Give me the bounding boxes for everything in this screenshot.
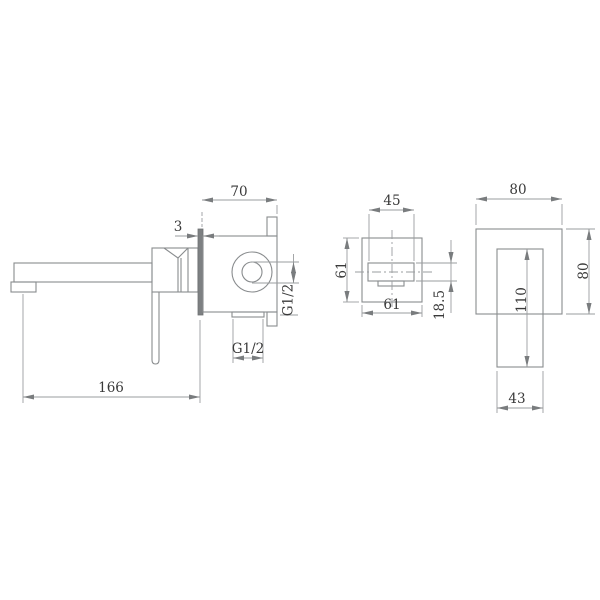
handle-cone-lines — [164, 248, 188, 258]
dim-label-depth: 70 — [230, 184, 247, 200]
mounting-tab-bottom — [267, 312, 277, 326]
dim-label-spout-width: 45 — [383, 193, 400, 209]
dim-label-spout-plate-height: 61 — [334, 261, 350, 278]
spout-outline — [14, 263, 152, 282]
handle-lever-outline — [152, 292, 159, 364]
dim-side-inlet-thread: G1/2 — [252, 254, 299, 316]
aerator-outline — [11, 282, 36, 292]
inlet-port-circle — [232, 252, 272, 292]
dim-spout-plate-width: 61 — [362, 297, 422, 317]
spout-front-view: 45 61 61 18.5 — [334, 193, 457, 320]
dim-label-plate-thickness: 3 — [174, 219, 183, 235]
valve-body-outline — [203, 236, 277, 312]
dim-plate-thickness: 3 — [174, 219, 219, 236]
mounting-tab-top — [267, 217, 277, 236]
handle-base-outline — [152, 248, 198, 292]
dim-label-spout-height: 18.5 — [432, 290, 448, 320]
dim-bottom-outlet-thread: G1/2 — [232, 319, 265, 363]
dim-label-mixer-plate-height: 80 — [576, 262, 592, 279]
dim-label-spout-plate-width: 61 — [383, 297, 400, 313]
dim-mixer-plate-width: 80 — [476, 182, 562, 225]
dim-label-handle-width: 43 — [508, 391, 525, 407]
dim-spout-reach: 166 — [23, 294, 200, 403]
dim-label-side-inlet-thread: G1/2 — [281, 284, 297, 317]
aerator-front-outline — [378, 281, 404, 286]
side-view: 70 3 166 G1/2 G1/2 — [11, 184, 299, 403]
handle-front-view: 80 80 110 43 — [476, 182, 595, 413]
dim-spout-plate-height: 61 — [334, 238, 359, 302]
dim-depth: 70 — [202, 184, 277, 227]
dim-spout-width: 45 — [369, 193, 414, 261]
dim-label-bottom-outlet-thread: G1/2 — [232, 341, 265, 357]
dim-label-mixer-plate-width: 80 — [509, 182, 526, 198]
faucet-dimension-drawing: 70 3 166 G1/2 G1/2 — [0, 0, 600, 600]
technical-drawing-page: 70 3 166 G1/2 G1/2 — [0, 0, 600, 600]
bottom-outlet-port — [232, 312, 264, 317]
inlet-thread-circle — [242, 262, 262, 282]
wall-plate — [198, 229, 203, 315]
dim-handle-width: 43 — [497, 371, 543, 413]
dim-label-spout-reach: 166 — [98, 380, 124, 396]
dim-handle-length: 110 — [514, 249, 530, 367]
dim-mixer-plate-height: 80 — [566, 229, 595, 314]
dim-label-handle-length: 110 — [514, 287, 530, 313]
